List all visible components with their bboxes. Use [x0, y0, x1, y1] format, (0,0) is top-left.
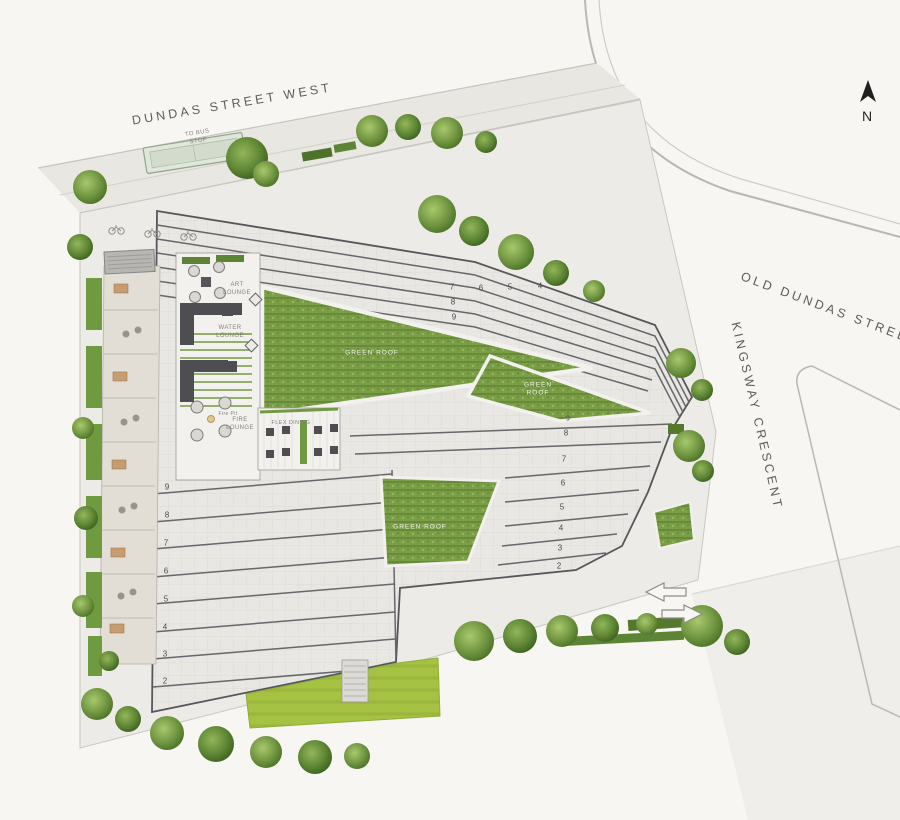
tree	[475, 131, 497, 153]
tree	[503, 619, 537, 653]
tree	[459, 216, 489, 246]
level-number: 8	[451, 298, 455, 307]
level-number: 6	[164, 567, 168, 576]
tree	[298, 740, 332, 774]
site-plan: DUNDAS STREET WEST OLD DUNDAS STREET KIN…	[0, 0, 900, 820]
level-number: 2	[557, 562, 561, 571]
tree	[395, 114, 421, 140]
level-number: 5	[560, 503, 564, 512]
label-green-roof-east: GREEN ROOF	[523, 382, 553, 399]
tree	[344, 743, 370, 769]
fire-pit	[208, 416, 215, 423]
tree	[253, 161, 279, 187]
tree	[673, 430, 705, 462]
level-number: 9	[165, 483, 169, 492]
level-number: 7	[164, 539, 168, 548]
tree	[666, 348, 696, 378]
tree	[724, 629, 750, 655]
level-number: 4	[559, 524, 563, 533]
label-green-roof-lower: GREEN ROOF	[393, 524, 447, 531]
north-label: N	[862, 108, 873, 124]
stairs	[342, 660, 368, 702]
level-number: 3	[163, 650, 167, 659]
level-number: 9	[452, 313, 456, 322]
tree	[591, 614, 619, 642]
level-number: 4	[538, 282, 542, 291]
tree	[454, 621, 494, 661]
level-number: 7	[562, 455, 566, 464]
tree	[99, 651, 119, 671]
tree	[81, 688, 113, 720]
tree	[691, 379, 713, 401]
level-number: 8	[564, 429, 568, 438]
tree	[250, 736, 282, 768]
tree	[67, 234, 93, 260]
tree	[543, 260, 569, 286]
label-fire-pit: Fire Pit	[218, 411, 237, 417]
tree	[431, 117, 463, 149]
level-number: 9	[566, 416, 570, 423]
label-art-lounge: ART LOUNGE	[223, 282, 251, 298]
tree	[72, 417, 94, 439]
tree	[150, 716, 184, 750]
tree	[198, 726, 234, 762]
tree	[356, 115, 388, 147]
level-number: 4	[163, 623, 167, 632]
tree	[636, 613, 658, 635]
tree	[115, 706, 141, 732]
tree	[546, 615, 578, 647]
tree	[74, 506, 98, 530]
level-number: 7	[450, 283, 454, 292]
level-number: 8	[165, 511, 169, 520]
tree	[692, 460, 714, 482]
label-green-roof-upper: GREEN ROOF	[345, 350, 399, 357]
tree	[73, 170, 107, 204]
level-number: 2	[163, 677, 167, 686]
tree	[498, 234, 534, 270]
tree	[418, 195, 456, 233]
label-water-lounge: WATER LOUNGE	[215, 325, 245, 341]
label-fire-lounge: FIRE LOUNGE	[226, 417, 254, 433]
tree	[72, 595, 94, 617]
level-number: 3	[558, 544, 562, 553]
level-number: 5	[508, 283, 512, 292]
level-number: 5	[164, 595, 168, 604]
level-number: 6	[561, 479, 565, 488]
label-flex-dining: FLEX DINING	[272, 420, 311, 426]
tree	[583, 280, 605, 302]
vent-grate	[104, 249, 155, 274]
level-number: 6	[479, 284, 483, 293]
west-balconies	[100, 266, 160, 664]
